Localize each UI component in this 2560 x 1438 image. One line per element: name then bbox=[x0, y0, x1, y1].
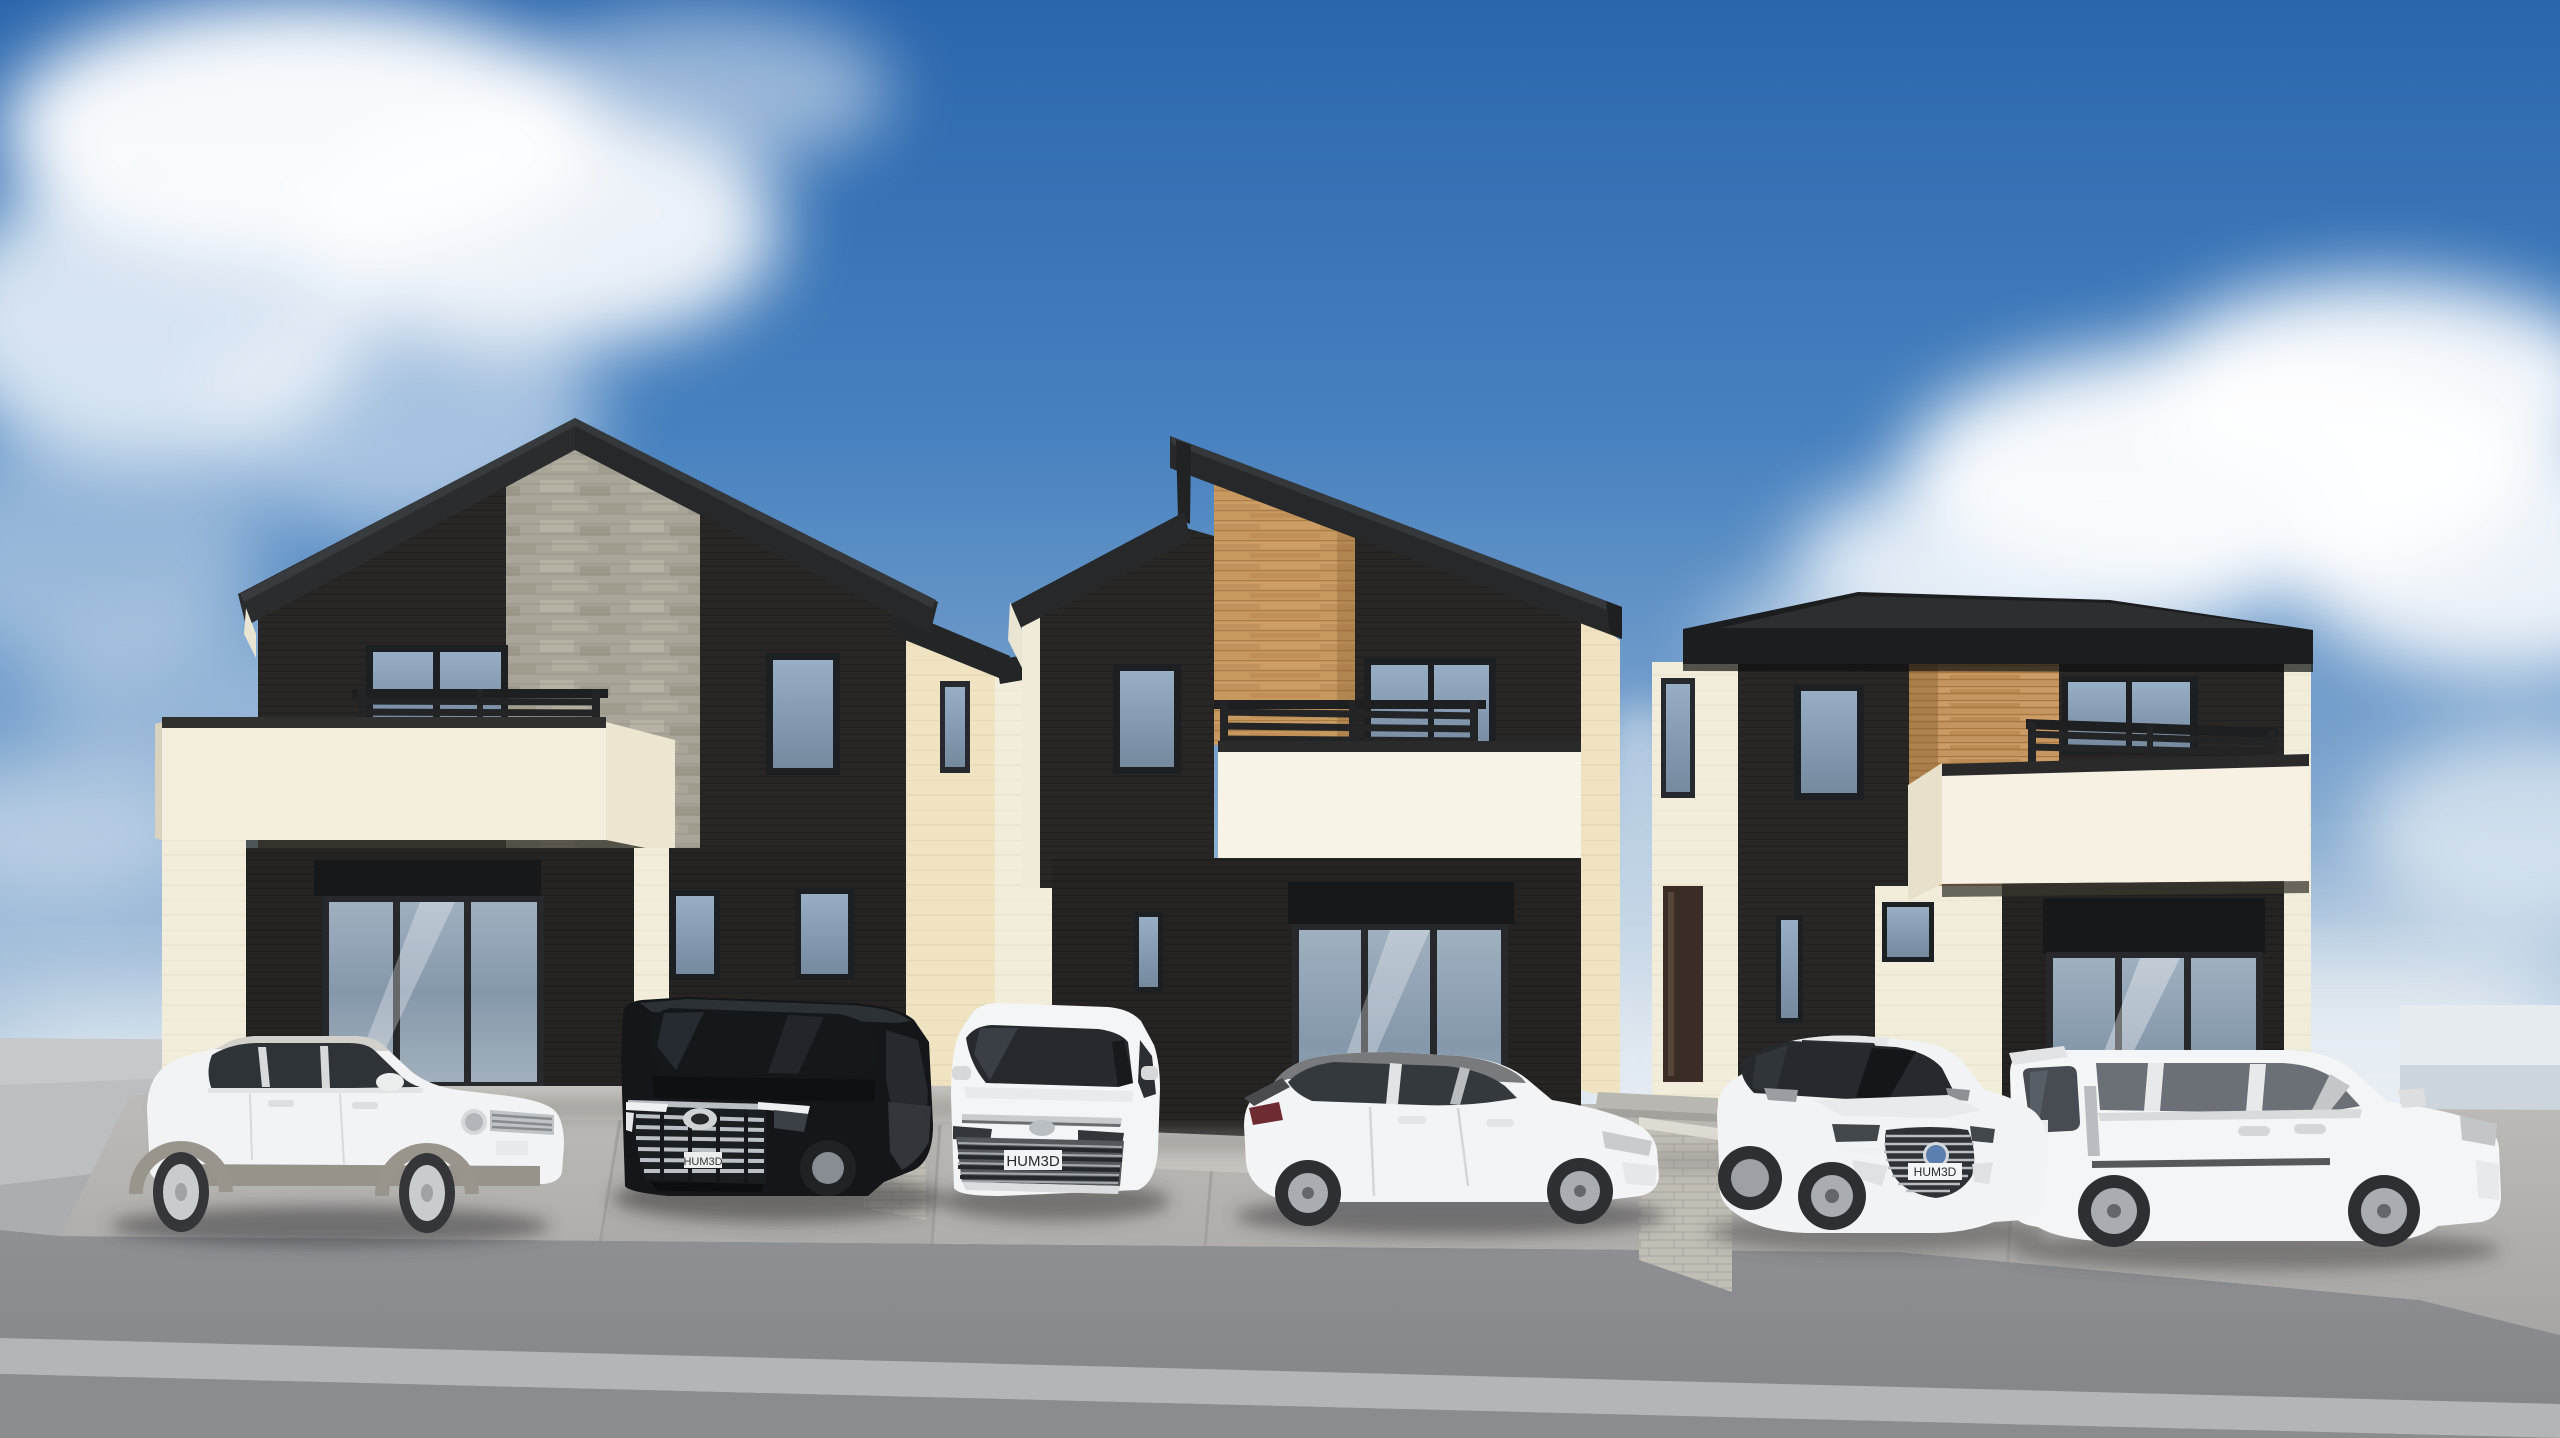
svg-text:HUM3D: HUM3D bbox=[1914, 1165, 1957, 1179]
svg-text:HUM3D: HUM3D bbox=[1006, 1153, 1060, 1170]
svg-text:HUM3D: HUM3D bbox=[683, 1156, 722, 1168]
